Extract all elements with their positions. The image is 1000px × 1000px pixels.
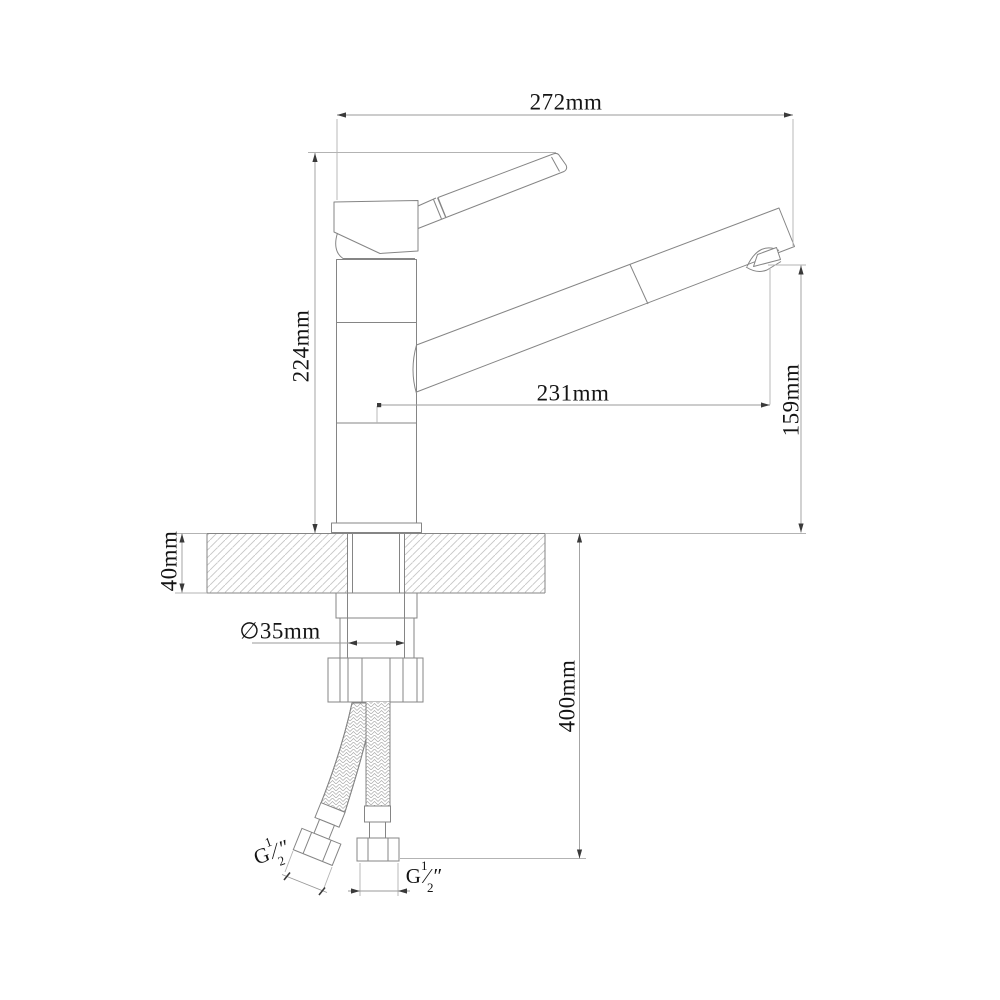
dim-hole-diameter-label: ∅35mm: [239, 620, 320, 643]
dimensions: [175, 112, 806, 896]
countertop-section: [207, 534, 545, 594]
faucet-spout: [417, 208, 795, 392]
faucet-handle: [418, 153, 567, 228]
body-column: [337, 260, 417, 524]
dim-g-left-line: [282, 875, 327, 893]
dim-spout-reach-label: 231mm: [537, 382, 610, 405]
thread-right-prefix: G: [406, 864, 421, 888]
dim-spout-outlet-height-label: 159mm: [780, 364, 803, 437]
thread-right-unit: ″: [433, 864, 442, 888]
dim-231-axis-dot: [377, 403, 381, 407]
thread-size-label-right: G1⁄2″: [406, 864, 442, 890]
dim-overall-width-label: 272mm: [530, 91, 603, 114]
thread-right-denominator: 2: [427, 880, 434, 895]
drawing-canvas: 272mm 224mm 231mm 159mm 40mm ∅35mm 400mm…: [0, 0, 1000, 1000]
countertop-hatch-right: [405, 534, 546, 593]
dim-height-above-deck-label: 224mm: [290, 310, 313, 383]
shank-block-lower: [340, 618, 414, 658]
base-flange: [332, 523, 422, 533]
handle-lever: [438, 153, 567, 217]
mixer-head: [334, 201, 418, 254]
dimension-lines: [182, 115, 801, 893]
hose-braid-right: [366, 702, 390, 806]
countertop-hatch-left: [207, 534, 348, 593]
dimension-arrows: [179, 112, 803, 893]
faucet-body: [332, 201, 422, 533]
dim-deck-thickness-label: 40mm: [158, 531, 181, 592]
spout-tube: [417, 208, 795, 392]
thread-right-numerator: 1: [421, 858, 428, 873]
hose-fitting-right: [357, 806, 399, 861]
faucet: [332, 153, 795, 532]
shank-inner-lines: [353, 534, 400, 594]
dim-hose-drop-label: 400mm: [556, 660, 579, 733]
mounting-nut: [328, 658, 423, 702]
faucet-technical-drawing: [0, 0, 1000, 1000]
